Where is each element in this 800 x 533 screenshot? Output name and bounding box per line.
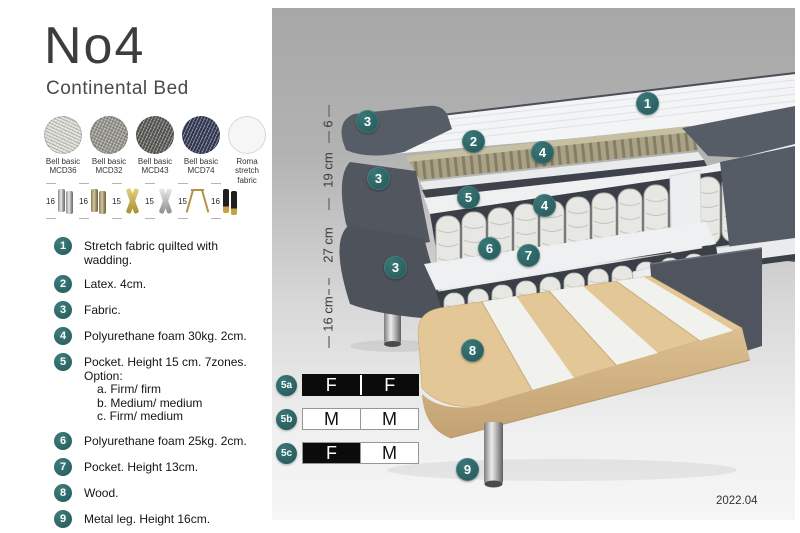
feature-badge: 2 — [54, 275, 72, 293]
page: No4 Continental Bed Bell basicMCD36 Bell… — [0, 0, 800, 533]
bronze-leg-icon — [90, 188, 108, 215]
feature-option: b. Medium/ medium — [97, 397, 266, 411]
feature-option: a. Firm/ firm — [97, 383, 266, 397]
callout-badge-3a: 3 — [356, 110, 379, 133]
leg-height-label: 15 — [112, 197, 123, 206]
leg-option-silver-cross: 15 — [145, 185, 176, 217]
firmness-cell: M — [303, 409, 360, 429]
fabric-swatch: Bell basicMCD32 — [88, 116, 130, 185]
leg-options: 16 16 15 15 — [46, 185, 242, 217]
callout-badge-8: 8 — [461, 339, 484, 362]
dimension-label-16cm: 16 cm — [320, 296, 335, 331]
dimension-label-27cm: 27 cm — [320, 227, 335, 262]
feature-text: Polyurethane foam 30kg. 2cm. — [84, 327, 247, 343]
feature-item: 8 Wood. — [54, 484, 266, 502]
leg-option-bronze-pair: 16 — [79, 185, 110, 217]
callout-badge-3c: 3 — [384, 256, 407, 279]
features-list: 1 Stretch fabric quilted with wadding. 2… — [54, 237, 266, 533]
feature-text: Pocket. Height 13cm. — [84, 458, 198, 474]
callout-badge-6: 6 — [478, 237, 501, 260]
fabric-label: Romastretch fabric — [226, 157, 268, 185]
dimension-label-6: 6 — [320, 120, 335, 127]
feature-badge: 7 — [54, 458, 72, 476]
dimension-labels: 6 19 cm 27 cm 16 cm — [320, 120, 335, 331]
fabric-swatch: Bell basicMCD74 — [180, 116, 222, 185]
feature-item: 1 Stretch fabric quilted with wadding. — [54, 237, 266, 267]
fabric-circle-icon — [136, 116, 174, 154]
callout-badge-2: 2 — [462, 130, 485, 153]
feature-badge: 6 — [54, 432, 72, 450]
feature-text: Fabric. — [84, 301, 121, 317]
fabric-label: Bell basicMCD32 — [88, 157, 130, 176]
dimension-label-19cm: 19 cm — [320, 152, 335, 187]
leg-option-black-pair: 16 — [211, 185, 242, 217]
firmness-cell: F — [360, 375, 419, 395]
feature-text: Polyurethane foam 25kg. 2cm. — [84, 432, 247, 448]
silver-cross-leg-icon — [156, 188, 174, 215]
firmness-cell: M — [360, 409, 418, 429]
feature-text: Latex. 4cm. — [84, 275, 146, 291]
fabric-label: Bell basicMCD74 — [180, 157, 222, 176]
chrome-leg-icon — [57, 188, 75, 215]
feature-badge: 9 — [54, 510, 72, 528]
firmness-bar: M M — [302, 408, 419, 430]
product-title: No4 — [44, 16, 145, 76]
fabric-label: Bell basicMCD36 — [42, 157, 84, 176]
feature-item: 5 Pocket. Height 15 cm. 7zones. Option: … — [54, 353, 266, 424]
firmness-badge: 5b — [276, 409, 297, 430]
version-label: 2022.04 — [716, 495, 758, 507]
feature-badge: 8 — [54, 484, 72, 502]
firmness-bar: F M — [302, 442, 419, 464]
callout-badge-1: 1 — [636, 92, 659, 115]
illustration-panel: 6 19 cm 27 cm 16 cm 1 2 3 3 3 4 4 5 6 7 … — [272, 8, 795, 520]
fabric-circle-icon — [44, 116, 82, 154]
feature-text: Metal leg. Height 16cm. — [84, 510, 210, 526]
feature-badge: 4 — [54, 327, 72, 345]
fabric-swatches: Bell basicMCD36 Bell basicMCD32 Bell bas… — [42, 116, 268, 185]
fabric-label: Bell basicMCD43 — [134, 157, 176, 176]
gold-cross-leg-icon — [123, 188, 141, 215]
black-gold-leg-icon — [222, 188, 240, 215]
leg-height-label: 16 — [211, 197, 222, 206]
feature-text: Pocket. Height 15 cm. 7zones. Option: a.… — [84, 353, 266, 424]
firmness-cell: M — [360, 443, 418, 463]
feature-item: 9 Metal leg. Height 16cm. — [54, 510, 266, 528]
product-subtitle: Continental Bed — [46, 78, 189, 100]
feature-badge: 3 — [54, 301, 72, 319]
feature-option: c. Firm/ medium — [97, 410, 266, 424]
firmness-row-5b: 5b M M — [276, 408, 419, 430]
feature-text: Wood. — [84, 484, 118, 500]
callout-badge-9: 9 — [456, 458, 479, 481]
feature-item: 6 Polyurethane foam 25kg. 2cm. — [54, 432, 266, 450]
callout-badge-4b: 4 — [533, 194, 556, 217]
fabric-circle-icon — [90, 116, 128, 154]
fabric-swatch: Romastretch fabric — [226, 116, 268, 185]
firmness-badge: 5a — [276, 375, 297, 396]
firmness-row-5c: 5c F M — [276, 442, 419, 464]
callout-badge-5: 5 — [457, 186, 480, 209]
feature-item: 2 Latex. 4cm. — [54, 275, 266, 293]
fabric-swatch: Bell basicMCD36 — [42, 116, 84, 185]
firmness-bar: F F — [302, 374, 419, 396]
feature-badge: 1 — [54, 237, 72, 255]
fabric-circle-icon — [228, 116, 266, 154]
leg-height-label: 16 — [46, 197, 57, 206]
firmness-cell: F — [303, 375, 360, 395]
leg-height-label: 15 — [145, 197, 156, 206]
leg-option-hairpin: 15 — [178, 185, 209, 217]
fabric-circle-icon — [182, 116, 220, 154]
feature-badge: 5 — [54, 353, 72, 371]
callout-badge-3b: 3 — [367, 167, 390, 190]
feature-item: 3 Fabric. — [54, 301, 266, 319]
firmness-row-5a: 5a F F — [276, 374, 419, 396]
metal-leg-right — [484, 422, 503, 488]
callout-badge-4a: 4 — [531, 141, 554, 164]
callout-badge-7: 7 — [517, 244, 540, 267]
leg-option-chrome-pair: 16 — [46, 185, 77, 217]
leg-option-gold-cross: 15 — [112, 185, 143, 217]
leg-height-label: 16 — [79, 197, 90, 206]
fabric-swatch: Bell basicMCD43 — [134, 116, 176, 185]
firmness-cell: F — [303, 443, 360, 463]
feature-text: Stretch fabric quilted with wadding. — [84, 237, 266, 267]
hairpin-leg-icon — [189, 188, 207, 215]
firmness-options: 5a F F 5b M M 5c F M — [276, 374, 419, 464]
firmness-badge: 5c — [276, 443, 297, 464]
feature-item: 4 Polyurethane foam 30kg. 2cm. — [54, 327, 266, 345]
feature-item: 7 Pocket. Height 13cm. — [54, 458, 266, 476]
